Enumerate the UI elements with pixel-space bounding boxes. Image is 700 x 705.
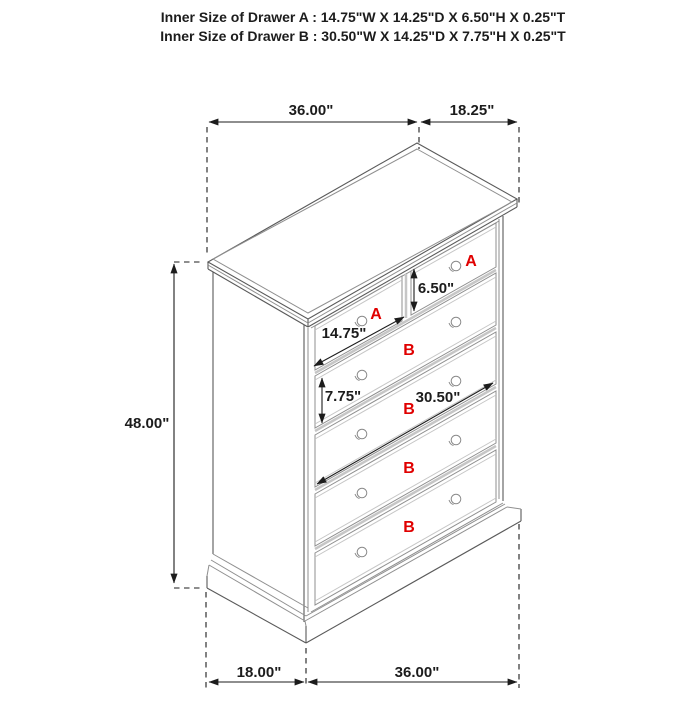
bottom-width-label: 36.00" <box>395 664 440 681</box>
drawer-a-spec-text: Inner Size of Drawer A : 14.75"W X 14.25… <box>161 9 566 25</box>
drawer-a-right-letter: A <box>465 253 477 270</box>
drawer-b-spec-text: Inner Size of Drawer B : 30.50"W X 14.25… <box>160 28 566 44</box>
drawer-a-width-label: 14.75" <box>322 325 367 342</box>
molding-step-front <box>305 621 306 626</box>
dresser-line-drawing: Inner Size of Drawer A : 14.75"W X 14.25… <box>0 0 700 700</box>
drawer-a-height-label: 6.50" <box>418 280 454 297</box>
furniture-dimension-diagram: Inner Size of Drawer A : 14.75"W X 14.25… <box>0 0 700 700</box>
carcass-bottom-side <box>213 554 308 608</box>
top-depth-label: 18.25" <box>450 102 495 119</box>
molding-step-right <box>507 507 521 509</box>
bottom-depth-label: 18.00" <box>237 664 282 681</box>
molding-bevel-side-2 <box>209 565 305 621</box>
drawer-b-height-label: 7.75" <box>325 388 361 405</box>
drawer-b-width-label: 30.50" <box>416 389 461 406</box>
height-label: 48.00" <box>125 415 170 432</box>
molding-bevel-side-1 <box>211 560 306 616</box>
drawer-b-4-letter: B <box>403 519 415 536</box>
drawer-b-2-letter: B <box>403 401 415 418</box>
header-specs: Inner Size of Drawer A : 14.75"W X 14.25… <box>160 9 566 44</box>
molding-step-left <box>207 565 209 576</box>
drawer-b-3-letter: B <box>403 460 415 477</box>
top-width-label: 36.00" <box>289 102 334 119</box>
drawer-b-1-letter: B <box>403 342 415 359</box>
drawer-a-left-letter: A <box>370 306 382 323</box>
base-bottom-side <box>207 588 306 643</box>
